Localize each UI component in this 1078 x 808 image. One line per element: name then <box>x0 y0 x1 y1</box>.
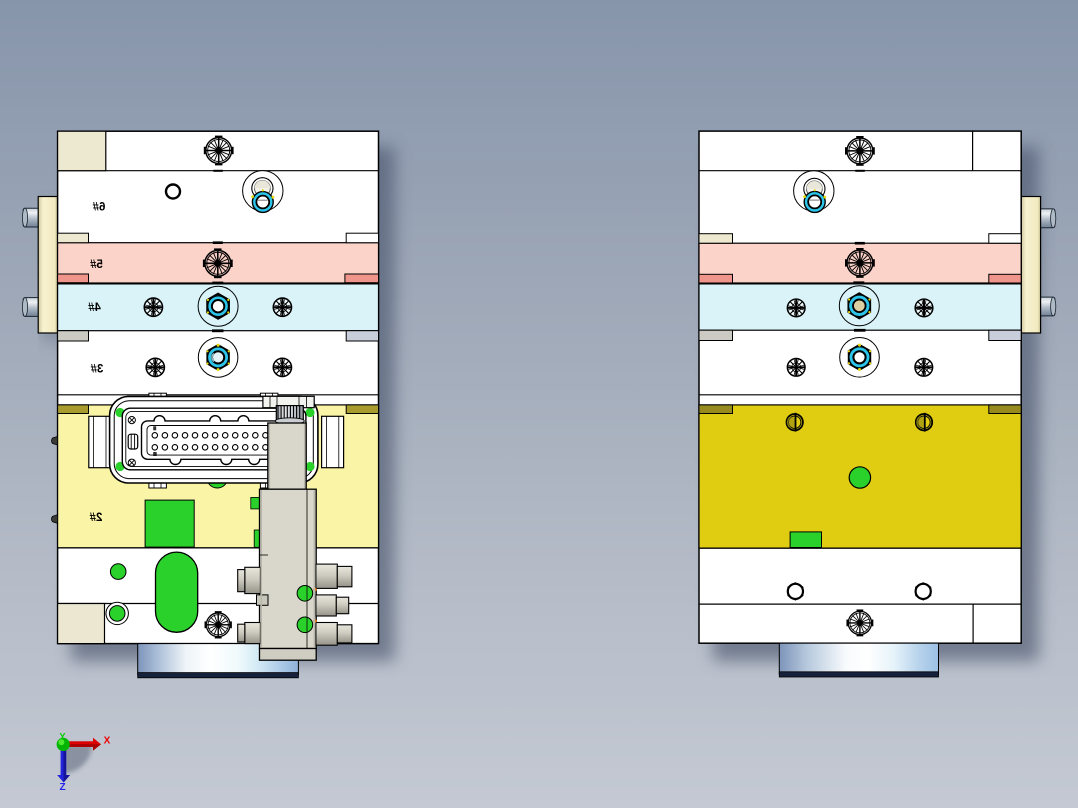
svg-text:X: X <box>104 736 111 747</box>
svg-text:4#: 4# <box>88 302 101 314</box>
svg-text:5#: 5# <box>90 259 103 271</box>
svg-text:6#: 6# <box>92 202 105 214</box>
svg-text:3#: 3# <box>90 364 103 376</box>
svg-text:2#: 2# <box>89 512 102 524</box>
svg-text:Z: Z <box>59 782 65 793</box>
svg-text:Y: Y <box>59 732 65 742</box>
